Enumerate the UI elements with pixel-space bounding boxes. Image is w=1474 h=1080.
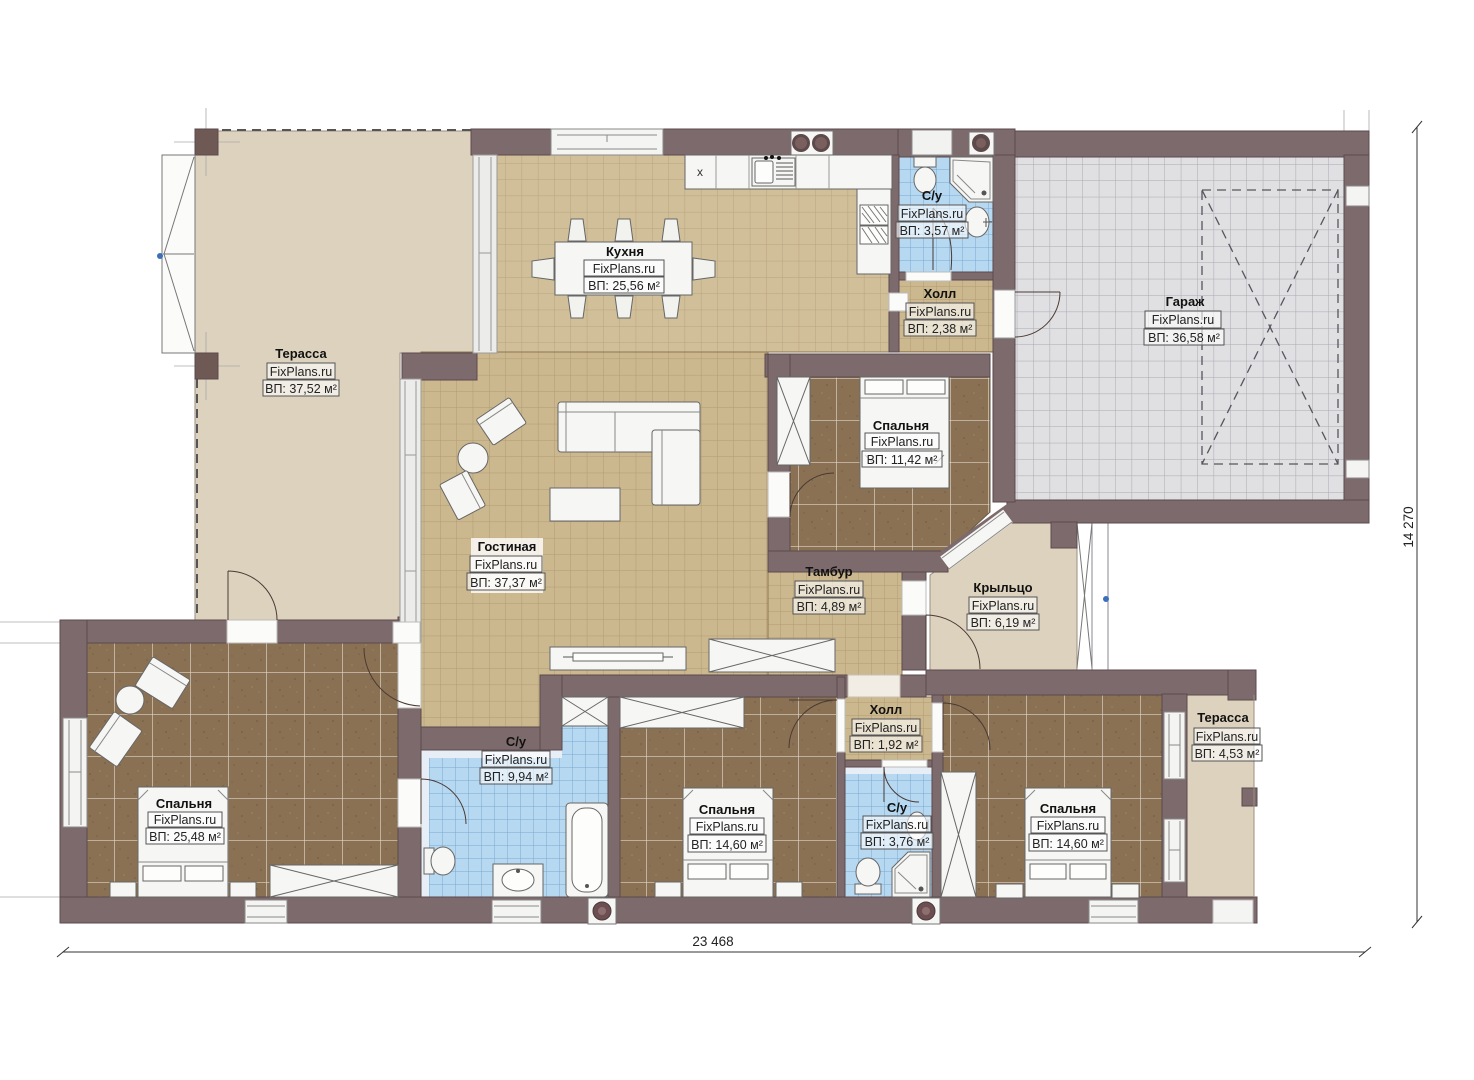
svg-text:FixPlans.ru: FixPlans.ru (972, 599, 1035, 613)
svg-text:Спальня: Спальня (156, 796, 212, 811)
svg-text:Тамбур: Тамбур (805, 564, 852, 579)
svg-text:FixPlans.ru: FixPlans.ru (909, 305, 972, 319)
svg-text:Терасса: Терасса (275, 346, 327, 361)
svg-text:FixPlans.ru: FixPlans.ru (1037, 819, 1100, 833)
svg-text:FixPlans.ru: FixPlans.ru (855, 721, 918, 735)
svg-text:ВП: 37,52 м²: ВП: 37,52 м² (265, 382, 337, 396)
svg-text:FixPlans.ru: FixPlans.ru (866, 818, 929, 832)
svg-text:ВП: 3,76 м²: ВП: 3,76 м² (865, 835, 930, 849)
svg-text:С/у: С/у (506, 734, 527, 749)
svg-text:Кухня: Кухня (606, 244, 644, 259)
svg-text:FixPlans.ru: FixPlans.ru (485, 753, 548, 767)
svg-text:Гостиная: Гостиная (478, 539, 537, 554)
svg-text:С/у: С/у (922, 188, 943, 203)
svg-text:С/у: С/у (887, 800, 908, 815)
svg-text:Спальня: Спальня (873, 418, 929, 433)
svg-text:FixPlans.ru: FixPlans.ru (901, 207, 964, 221)
svg-text:ВП: 1,92 м²: ВП: 1,92 м² (854, 738, 919, 752)
svg-text:Крыльцо: Крыльцо (973, 580, 1032, 595)
svg-text:ВП: 14,60 м²: ВП: 14,60 м² (1032, 837, 1104, 851)
svg-text:ВП: 11,42 м²: ВП: 11,42 м² (867, 453, 938, 467)
svg-text:FixPlans.ru: FixPlans.ru (475, 558, 538, 572)
svg-text:Спальня: Спальня (1040, 801, 1096, 816)
svg-text:FixPlans.ru: FixPlans.ru (871, 435, 934, 449)
svg-text:ВП: 4,89 м²: ВП: 4,89 м² (797, 600, 862, 614)
svg-text:Холл: Холл (924, 286, 957, 301)
svg-text:Гараж: Гараж (1166, 294, 1206, 309)
svg-text:FixPlans.ru: FixPlans.ru (696, 820, 759, 834)
svg-text:ВП: 25,56 м²: ВП: 25,56 м² (588, 279, 660, 293)
svg-text:ВП: 6,19 м²: ВП: 6,19 м² (971, 616, 1036, 630)
svg-text:Холл: Холл (870, 702, 903, 717)
svg-text:FixPlans.ru: FixPlans.ru (798, 583, 861, 597)
svg-text:ВП: 14,60 м²: ВП: 14,60 м² (691, 838, 763, 852)
svg-text:Спальня: Спальня (699, 802, 755, 817)
svg-text:FixPlans.ru: FixPlans.ru (1196, 730, 1259, 744)
svg-text:14 270: 14 270 (1401, 506, 1416, 547)
svg-text:ВП: 25,48 м²: ВП: 25,48 м² (149, 830, 221, 844)
svg-text:FixPlans.ru: FixPlans.ru (1152, 313, 1215, 327)
svg-text:FixPlans.ru: FixPlans.ru (593, 262, 656, 276)
svg-text:ВП: 37,37 м²: ВП: 37,37 м² (470, 576, 542, 590)
svg-text:FixPlans.ru: FixPlans.ru (154, 813, 217, 827)
svg-text:ВП: 2,38 м²: ВП: 2,38 м² (908, 322, 973, 336)
svg-text:x: x (697, 165, 703, 179)
svg-text:23 468: 23 468 (692, 934, 733, 949)
svg-text:FixPlans.ru: FixPlans.ru (270, 365, 333, 379)
svg-text:ВП: 36,58 м²: ВП: 36,58 м² (1148, 331, 1220, 345)
svg-text:ВП: 4,53 м²: ВП: 4,53 м² (1195, 747, 1260, 761)
svg-text:ВП: 9,94 м²: ВП: 9,94 м² (484, 770, 549, 784)
svg-text:Терасса: Терасса (1197, 710, 1249, 725)
svg-text:ВП: 3,57 м²: ВП: 3,57 м² (900, 224, 965, 238)
